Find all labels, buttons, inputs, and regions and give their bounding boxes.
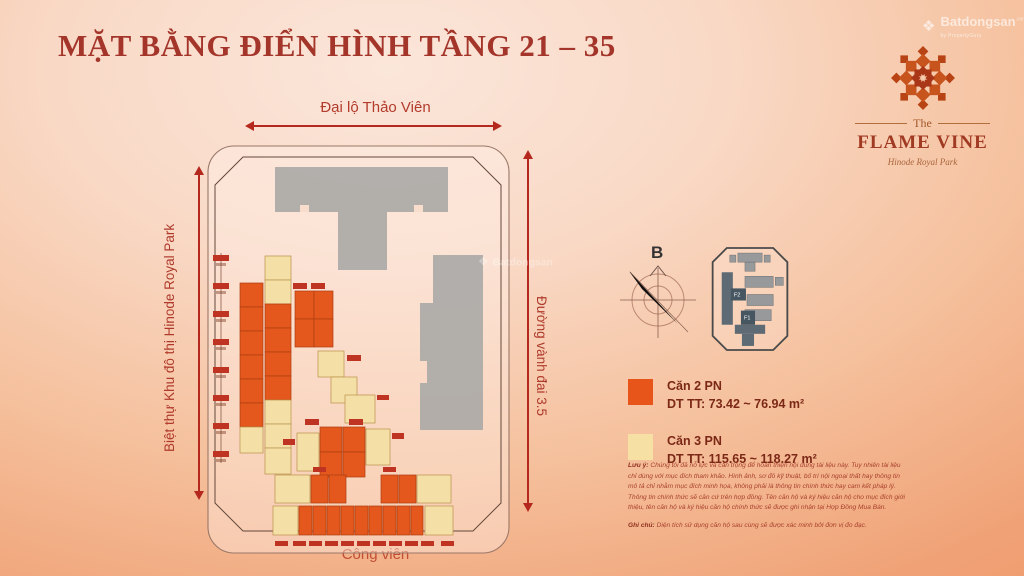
unit-strip-a (240, 283, 263, 453)
note-luu-y-label: Lưu ý: (628, 462, 648, 469)
batdongsan-watermark-plan: ❖ Batdongsan (478, 256, 553, 268)
legend-swatch-2pn (628, 379, 653, 405)
legend-label-2pn: Căn 2 PN (667, 377, 804, 395)
note-ghi-chu-label: Ghi chú: (628, 522, 655, 529)
logo-the: The (855, 116, 990, 131)
minimap-f2-label: F2 (734, 292, 740, 298)
legend-label-3pn: Căn 3 PN (667, 432, 817, 450)
watermark-brand: Batdongsan.com.vn (940, 14, 1024, 29)
note-luu-y: Lưu ý: Chúng tôi đã nỗ lực và cẩn trọng … (628, 461, 910, 514)
site-plan (205, 143, 512, 556)
compass: B (618, 240, 698, 342)
flame-vine-logo: The FLAME VINE Hinode Royal Park (855, 40, 990, 167)
location-minimap: F2 F1 (710, 246, 790, 352)
compass-north-label: B (651, 243, 663, 262)
minimap-f1-label: F1 (744, 316, 750, 322)
dimension-arrow-right (527, 152, 529, 510)
batdongsan-diamond-icon: ❖ (922, 19, 935, 34)
legend-area-2pn: DT TT: 73.42 ~ 76.94 m² (667, 395, 804, 413)
dimension-arrow-top (247, 125, 500, 127)
page-title: MẶT BẰNG ĐIỂN HÌNH TẦNG 21 – 35 (58, 28, 616, 64)
road-label-left: Biệt thự Khu đô thị Hinode Royal Park (162, 178, 177, 498)
dimension-arrow-left (198, 168, 200, 498)
batdongsan-watermark: ❖ Batdongsan.com.vn by PropertyGuru (922, 13, 1024, 39)
notes: Lưu ý: Chúng tôi đã nỗ lực và cẩn trọng … (628, 461, 910, 538)
road-label-right: Đường vành đai 3.5 (534, 248, 549, 463)
logo-subtitle: Hinode Royal Park (888, 157, 957, 167)
road-label-top: Đại lộ Thảo Viên (303, 99, 448, 116)
batdongsan-diamond-icon: ❖ (478, 256, 489, 268)
flame-flower-icon (885, 40, 961, 116)
legend-item-2pn: Căn 2 PN DT TT: 73.42 ~ 76.94 m² (628, 377, 928, 413)
logo-name: FLAME VINE (857, 132, 988, 154)
watermark-tagline: by PropertyGuru (940, 33, 1024, 39)
note-ghi-chu: Ghi chú: Diện tích sử dụng căn hộ sau cù… (628, 521, 910, 532)
unit-badges-bottom (275, 541, 454, 546)
compass-needle-icon (629, 271, 678, 324)
legend-swatch-3pn (628, 434, 653, 460)
